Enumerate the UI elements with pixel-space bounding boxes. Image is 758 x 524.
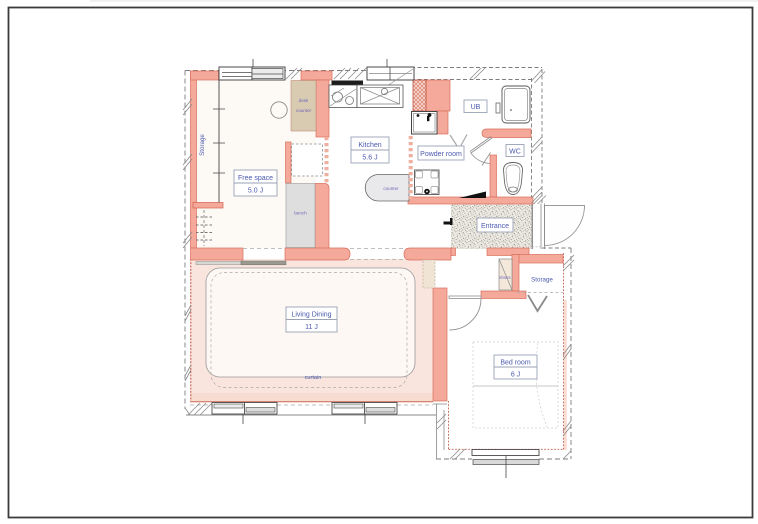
svg-text:Free space: Free space [238, 175, 273, 182]
svg-text:counter: counter [296, 108, 312, 113]
svg-text:UB: UB [471, 104, 481, 111]
svg-text:bench: bench [294, 211, 307, 216]
svg-text:counter: counter [383, 186, 399, 191]
svg-text:Storage: Storage [531, 277, 553, 284]
svg-text:11 J: 11 J [305, 324, 318, 331]
svg-text:Entrance: Entrance [481, 223, 509, 230]
svg-text:5.6 J: 5.6 J [362, 155, 377, 162]
svg-text:Storage: Storage [199, 134, 206, 156]
svg-text:desk: desk [299, 98, 309, 103]
svg-text:Bed room: Bed room [500, 360, 531, 367]
svg-text:Powder room: Powder room [420, 151, 462, 158]
svg-text:shoes: shoes [499, 275, 510, 280]
svg-text:curtain: curtain [305, 375, 322, 381]
svg-text:WC: WC [509, 149, 521, 156]
svg-text:6 J: 6 J [511, 372, 520, 379]
svg-text:Kitchen: Kitchen [358, 142, 381, 149]
svg-text:5.0 J: 5.0 J [248, 188, 263, 195]
svg-text:Living Dining: Living Dining [291, 312, 331, 319]
